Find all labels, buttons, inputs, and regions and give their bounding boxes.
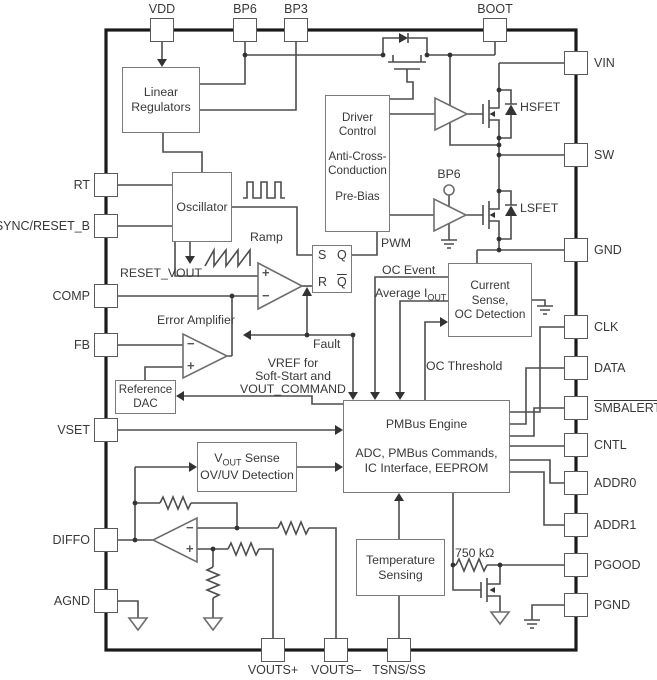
diff-amp-plus-label: + [186, 541, 194, 556]
pin-vin [564, 51, 588, 75]
pin-addr0 [564, 471, 588, 495]
vref-label-line2: Soft-Start and [255, 369, 331, 383]
pin-addr0-label: ADDR0 [594, 476, 636, 490]
average-iout-label: Average IOUT [375, 286, 446, 302]
fault-label: Fault [313, 337, 340, 351]
linear-regulators-label: Linear [144, 85, 178, 100]
pin-data-label: DATA [594, 361, 625, 375]
lsfet-label: LSFET [520, 201, 558, 215]
pin-pgnd-label: PGND [594, 598, 630, 612]
latch-q-label: Q [337, 248, 347, 263]
vout-sense-block: VOUT Sense OV/UV Detection [197, 442, 297, 492]
pin-sync-reset-b-label: SYNC/RESET_B [0, 219, 90, 233]
ramp-waveform-icon [205, 250, 250, 266]
current-sense-block: Current Sense, OC Detection [448, 263, 532, 337]
pin-bp6 [233, 18, 257, 42]
oscillator-block: Oscillator [172, 172, 232, 242]
pin-fb [94, 333, 118, 357]
pmbus-engine-block: PMBus Engine ADC, PMBus Commands, IC Int… [343, 400, 510, 493]
latch-s-label: S [318, 248, 326, 263]
earth-ground-pgnd-icon [524, 620, 540, 628]
pin-vset [94, 418, 118, 442]
pin-fb-label: FB [74, 338, 90, 352]
pin-pgnd [564, 593, 588, 617]
boot-diode-icon [383, 33, 427, 55]
resistor-feedback-icon [160, 497, 191, 509]
error-amp-plus-label: + [187, 358, 195, 373]
triangle-ground-resistor-icon [204, 618, 222, 630]
ramp-label: Ramp [250, 230, 283, 244]
driver-control-block: Driver Control Anti-Cross- Conduction Pr… [325, 95, 390, 232]
pin-gnd-label: GND [594, 243, 622, 257]
pin-boot-label: BOOT [477, 2, 512, 16]
pmbus-title: PMBus Engine [386, 417, 467, 432]
oc-event-label: OC Event [382, 263, 435, 277]
pin-vset-label: VSET [57, 423, 90, 437]
pin-bp3-label: BP3 [284, 2, 308, 16]
reset-vout-label: RESET_VOUT [120, 266, 202, 280]
ls-gate-driver-icon [434, 199, 466, 231]
resistor-750k-label: 750 kΩ [455, 546, 494, 560]
pin-diffo-label: DIFFO [53, 533, 91, 547]
linear-regulators-block: Linear Regulators [122, 67, 200, 133]
pin-comp-label: COMP [53, 289, 91, 303]
pin-clk-label: CLK [594, 320, 618, 334]
pin-sync-reset-b [94, 214, 118, 238]
pin-pgood [564, 553, 588, 577]
latch-qbar-label: Q [337, 275, 347, 290]
pin-data [564, 356, 588, 380]
bp6-driver-label: BP6 [437, 167, 460, 181]
latch-r-label: R [318, 275, 327, 290]
pin-tsns-ss [387, 638, 411, 662]
triangle-ground-pgood-icon [491, 612, 509, 624]
hs-gate-driver-icon [435, 98, 467, 130]
comparator-minus-label: − [262, 288, 270, 303]
lsfet-icon [483, 155, 517, 250]
hsfet-label: HSFET [520, 100, 560, 114]
pin-gnd [564, 238, 588, 262]
pin-comp [94, 284, 118, 308]
pin-sw-label: SW [594, 148, 614, 162]
pin-pgood-label: PGOOD [594, 558, 641, 572]
pin-sw [564, 143, 588, 167]
pin-voutsp-label: VOUTS+ [248, 663, 298, 677]
pin-cntl-label: CNTL [594, 438, 627, 452]
pin-rt [94, 173, 118, 197]
pin-smbalert-label: SMBALERT [594, 401, 657, 415]
pin-vdd-label: VDD [149, 2, 175, 16]
hsfet-icon [483, 63, 517, 155]
oscillator-label: Oscillator [176, 200, 227, 215]
comparator-plus-label: + [262, 265, 270, 280]
triangle-ground-agnd-icon [129, 618, 147, 630]
earth-ground-lsdriver-icon [441, 240, 457, 248]
pin-addr1 [564, 513, 588, 537]
pin-bp3 [284, 18, 308, 42]
diff-amp-minus-label: − [186, 520, 194, 535]
error-amplifier-label: Error Amplifier [157, 313, 235, 327]
pin-diffo [94, 528, 118, 552]
pin-tsns-ss-label: TSNS/SS [372, 663, 426, 677]
pin-bp6-label: BP6 [233, 2, 257, 16]
pin-vin-label: VIN [594, 56, 615, 70]
pin-voutsp [261, 638, 285, 662]
pin-addr1-label: ADDR1 [594, 518, 636, 532]
oc-threshold-label: OC Threshold [426, 359, 502, 373]
pin-rt-label: RT [74, 178, 90, 192]
pin-clk [564, 315, 588, 339]
pin-vdd [150, 18, 174, 42]
pin-voutsn-label: VOUTS– [311, 663, 361, 677]
boot-switch-icon [388, 55, 426, 99]
pin-agnd [94, 589, 118, 613]
pulse-waveform-icon [243, 182, 285, 198]
block-diagram: Linear Regulators Oscillator Driver Cont… [0, 0, 657, 680]
pin-cntl [564, 433, 588, 457]
pwm-label: PWM [381, 236, 411, 250]
sr-latch-block: S Q R Q [312, 245, 352, 293]
pin-boot [483, 18, 507, 42]
resistor-voutsn-icon [278, 522, 309, 534]
resistor-750k-icon [456, 559, 487, 571]
temperature-sensing-block: Temperature Sensing [356, 539, 445, 596]
resistor-gnd-icon [207, 567, 219, 598]
pin-smbalert [564, 396, 588, 420]
pin-voutsn [324, 638, 348, 662]
pin-agnd-label: AGND [54, 594, 90, 608]
earth-ground-currentsense-icon [537, 306, 553, 314]
resistor-voutsp-icon [228, 543, 259, 555]
vref-label-line1: VREF for [268, 356, 319, 370]
error-amp-minus-label: − [187, 336, 195, 351]
bp6-supply-icon [444, 185, 454, 195]
vref-label-line3: VOUT_COMMAND [240, 382, 346, 396]
reference-dac-block: Reference DAC [115, 380, 176, 414]
